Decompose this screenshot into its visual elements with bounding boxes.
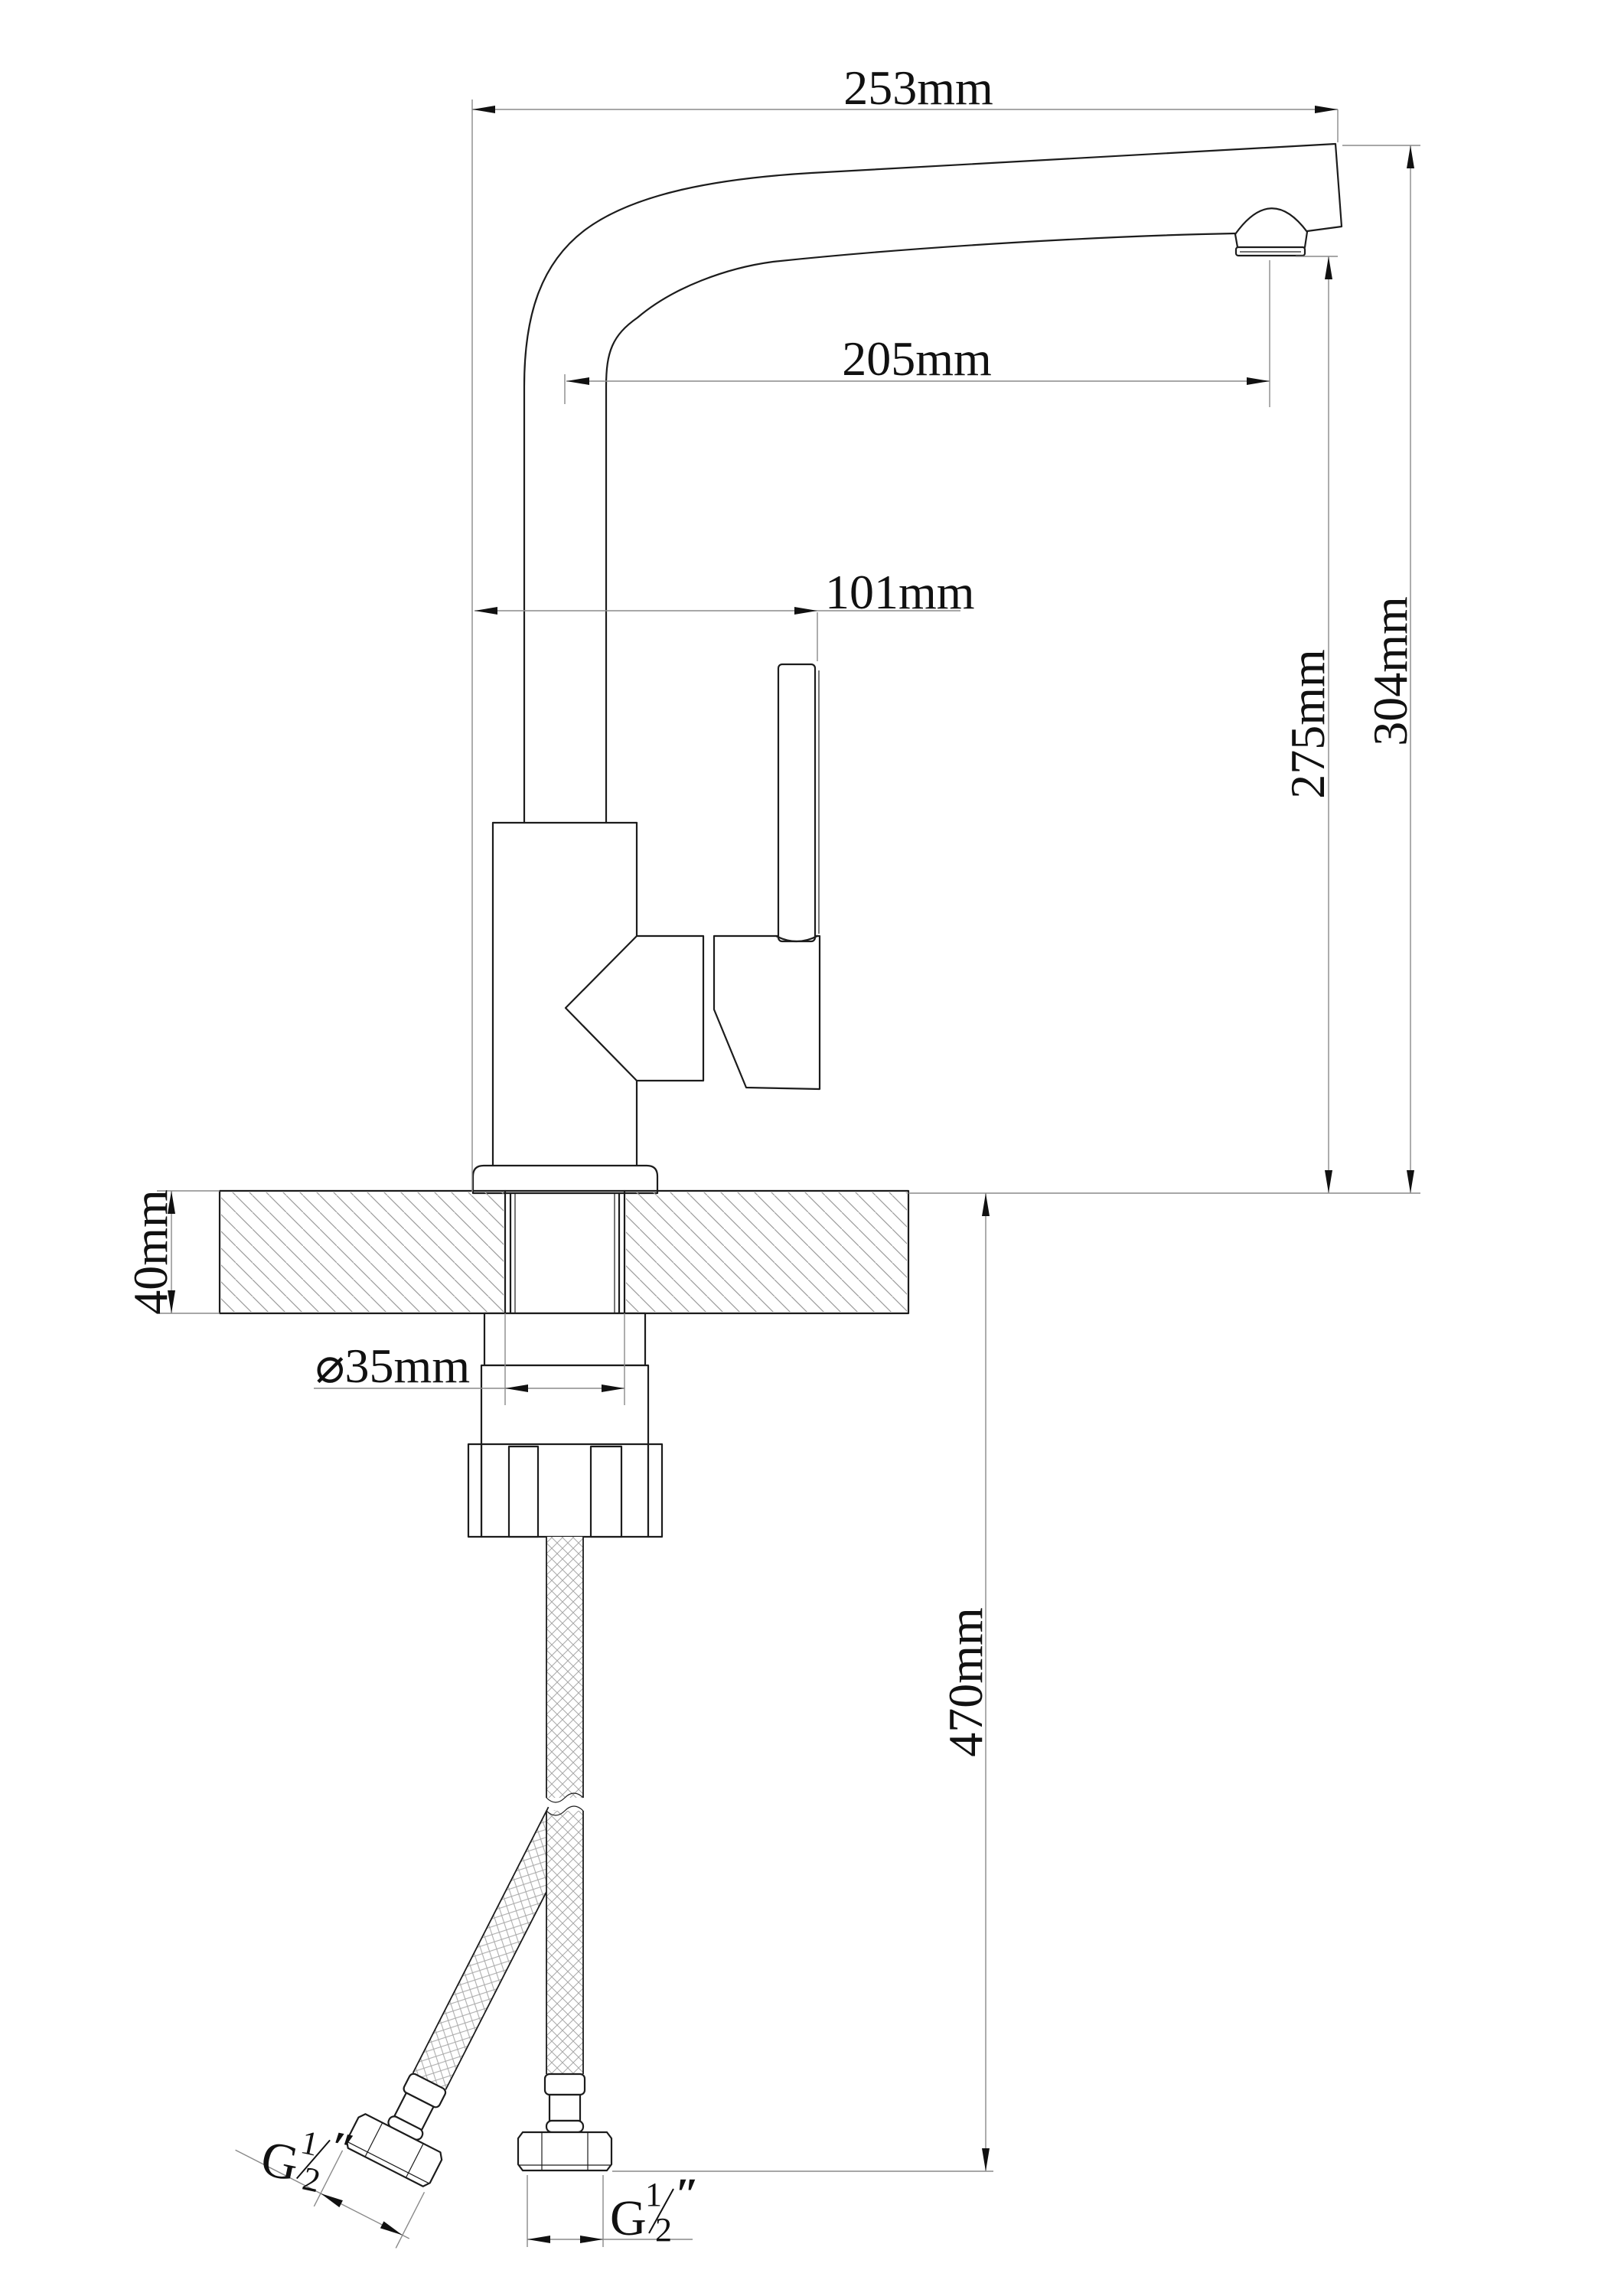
hose-fitting-left (344, 2060, 471, 2189)
counter-hatch-left (221, 1192, 504, 1312)
hose-fitting-right (518, 2074, 611, 2170)
label-thread-left: G 1 2 ″ (256, 2108, 360, 2206)
counter-hatch-right (626, 1192, 907, 1312)
thread-left-letter: G (256, 2130, 304, 2192)
kitchen-faucet-dimension-drawing: 253mm 205mm 101mm 275mm 304mm 470mm 40mm… (0, 0, 1624, 2296)
label-hose-length: 470mm (938, 1607, 993, 1757)
thread-bottom-numerator: 1 (645, 2176, 662, 2213)
thread-bottom-denominator: 2 (655, 2211, 672, 2249)
thread-left-numerator: 1 (298, 2123, 322, 2164)
mounting-hole-walls (505, 1191, 624, 1313)
thread-left-unit: ″ (325, 2121, 360, 2174)
label-handle-offset: 101mm (825, 565, 975, 619)
label-spout-reach: 205mm (842, 331, 992, 386)
label-deck-thickness: 40mm (123, 1189, 178, 1315)
spout-arm-outline (524, 144, 1342, 823)
aerator (1235, 208, 1307, 256)
handle-wedge (566, 936, 703, 1081)
label-aerator-height: 275mm (1280, 649, 1335, 799)
thread-bottom-unit: ″ (675, 2169, 699, 2219)
technical-drawing-page: 253mm 205mm 101mm 275mm 304mm 470mm 40mm… (0, 0, 1624, 2296)
thread-bottom-letter: G (610, 2190, 647, 2246)
thread-left-denominator: 2 (299, 2160, 324, 2200)
base-flange (473, 1166, 657, 1193)
threaded-shank (510, 1193, 619, 1313)
handle-housing (714, 936, 820, 1089)
spacer-washer (484, 1313, 645, 1365)
faucet-outline (473, 144, 1342, 1193)
spout-underside (606, 233, 1235, 823)
dimension-hose-length (612, 1193, 993, 2171)
label-thread-bottom: G 1 2 ″ (610, 2169, 699, 2249)
handle-lever (776, 664, 819, 941)
label-overall-height: 304mm (1363, 596, 1417, 746)
label-hole-diameter: ⌀35mm (315, 1339, 470, 1393)
mounting-nut (481, 1365, 648, 1537)
dimension-overall-height (908, 145, 1420, 1193)
label-spout-width: 253mm (843, 60, 993, 115)
countertop-section (220, 1191, 908, 1313)
